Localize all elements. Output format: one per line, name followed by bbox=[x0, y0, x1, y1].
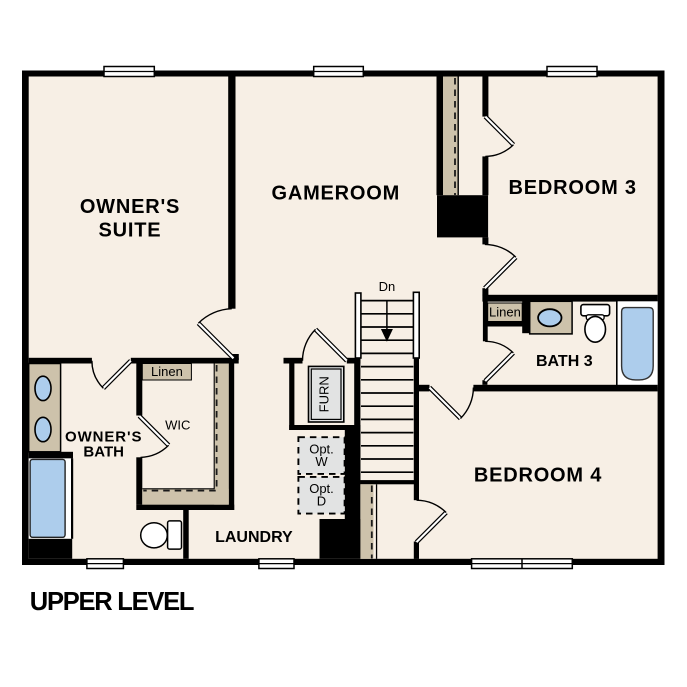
svg-text:SUITE: SUITE bbox=[99, 219, 162, 241]
svg-text:OWNER'S: OWNER'S bbox=[80, 196, 180, 218]
svg-text:GAMEROOM: GAMEROOM bbox=[271, 182, 400, 204]
svg-text:BEDROOM 4: BEDROOM 4 bbox=[474, 465, 602, 487]
svg-text:Linen: Linen bbox=[151, 364, 183, 379]
svg-text:BATH 3: BATH 3 bbox=[536, 353, 593, 370]
svg-text:Linen: Linen bbox=[489, 305, 521, 320]
svg-text:D: D bbox=[317, 494, 326, 509]
svg-text:BATH: BATH bbox=[83, 443, 124, 460]
svg-text:LAUNDRY: LAUNDRY bbox=[215, 529, 293, 546]
svg-text:Dn: Dn bbox=[379, 279, 396, 294]
svg-text:UPPER LEVEL: UPPER LEVEL bbox=[30, 588, 194, 616]
svg-text:W: W bbox=[315, 454, 328, 469]
svg-text:BEDROOM 3: BEDROOM 3 bbox=[509, 177, 637, 199]
svg-text:WIC: WIC bbox=[165, 418, 190, 433]
svg-text:FURN: FURN bbox=[317, 376, 332, 412]
